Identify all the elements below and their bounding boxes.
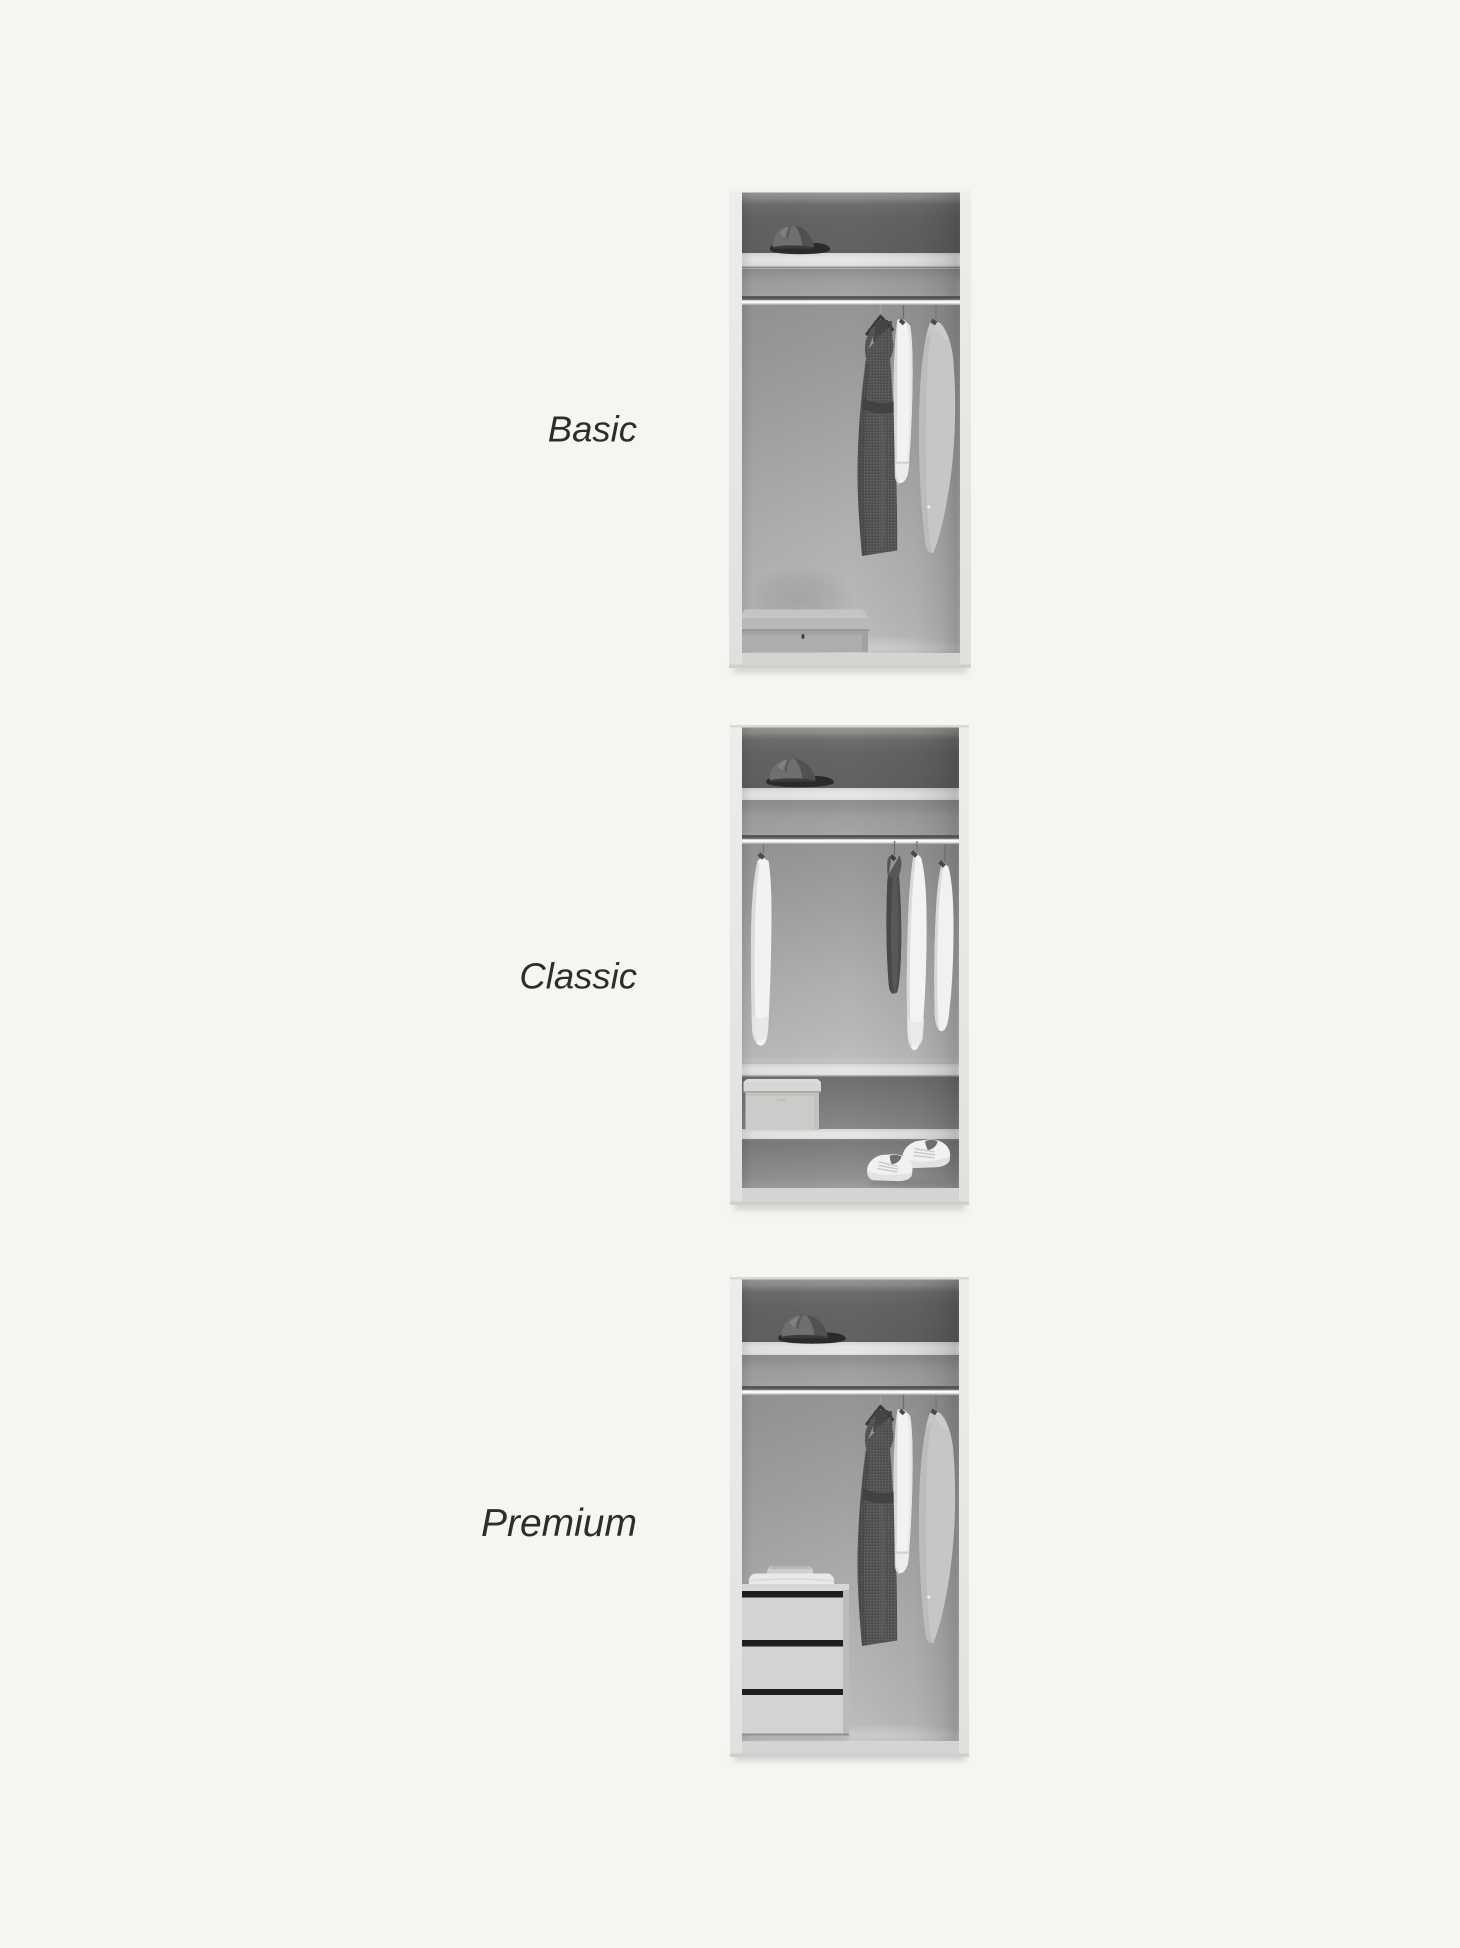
svg-text:Basic: Basic: [548, 409, 637, 450]
svg-text:Classic: Classic: [519, 955, 637, 996]
svg-text:Premium: Premium: [481, 1502, 637, 1545]
